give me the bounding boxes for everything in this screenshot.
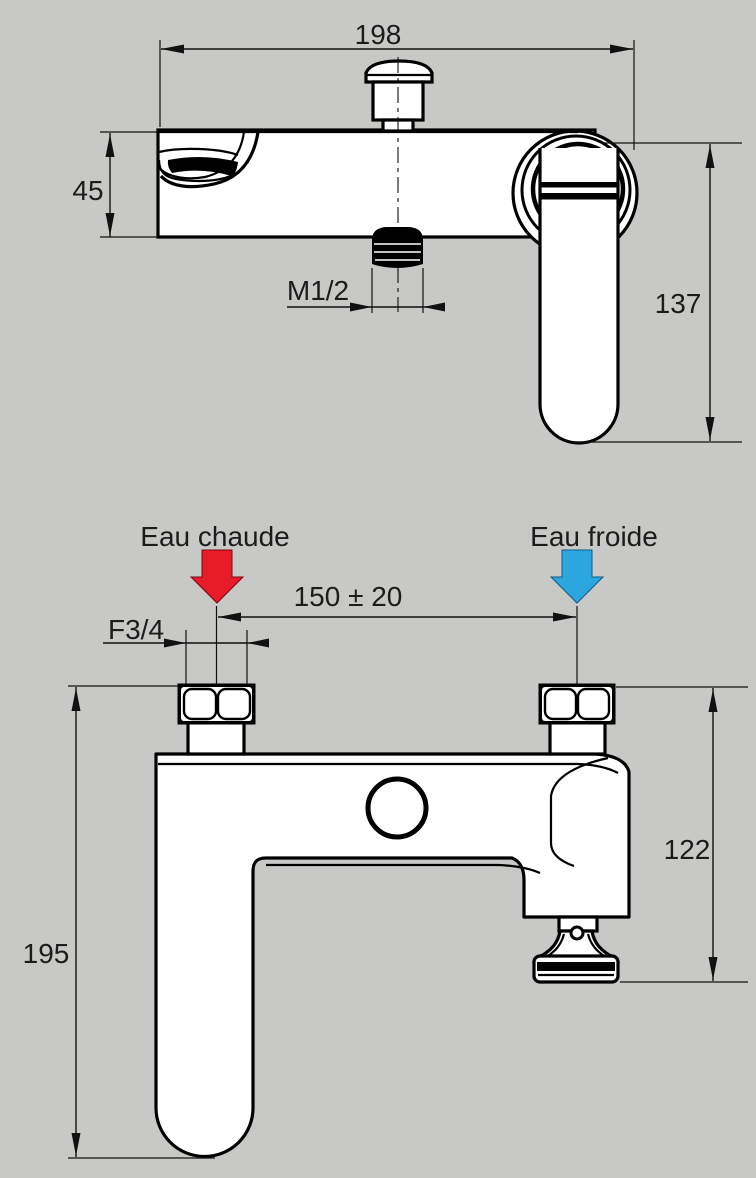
- hot-water-label: Eau chaude: [140, 521, 289, 552]
- handle-collar-band: [540, 193, 618, 200]
- diverter-knob: [366, 61, 432, 131]
- technical-drawing-page: 198: [0, 0, 756, 1178]
- dim-150-label: 150 ± 20: [294, 581, 403, 612]
- dim-m12-label: M1/2: [287, 275, 349, 306]
- cold-water-label: Eau froide: [530, 521, 658, 552]
- bar-chamfer: [266, 865, 540, 873]
- diverter-button: [368, 779, 426, 837]
- hot-water-arrow: [191, 550, 243, 603]
- dim-198-label: 198: [355, 19, 402, 50]
- dim-122: 122: [616, 687, 748, 982]
- cold-inlet-nut: [540, 685, 614, 754]
- dim-137-label: 137: [655, 288, 702, 319]
- hot-inlet-nut: [179, 685, 254, 754]
- dim-f34-label: F3/4: [108, 614, 164, 645]
- dim-45: 45: [72, 132, 157, 237]
- top-view-side-elevation: 198: [72, 19, 742, 443]
- handle-collar-band: [540, 182, 618, 188]
- bottom-view-front-elevation: Eau chaude Eau froide 150 ± 20 F3/4: [23, 521, 748, 1158]
- dim-m12: M1/2: [287, 268, 445, 313]
- faucet-dimension-drawing: 198: [0, 0, 756, 1178]
- dim-122-label: 122: [664, 834, 711, 865]
- dim-45-label: 45: [72, 175, 103, 206]
- dim-150: 150 ± 20: [218, 581, 576, 622]
- cold-water-arrow: [551, 550, 603, 603]
- dim-f34: F3/4: [103, 614, 269, 684]
- arrowhead: [610, 45, 633, 54]
- lever-handle-side: [540, 148, 618, 443]
- shower-hose-connector: [534, 917, 618, 982]
- threaded-outlet: [372, 227, 423, 268]
- arrowhead: [161, 45, 184, 54]
- dim-195-label: 195: [23, 938, 70, 969]
